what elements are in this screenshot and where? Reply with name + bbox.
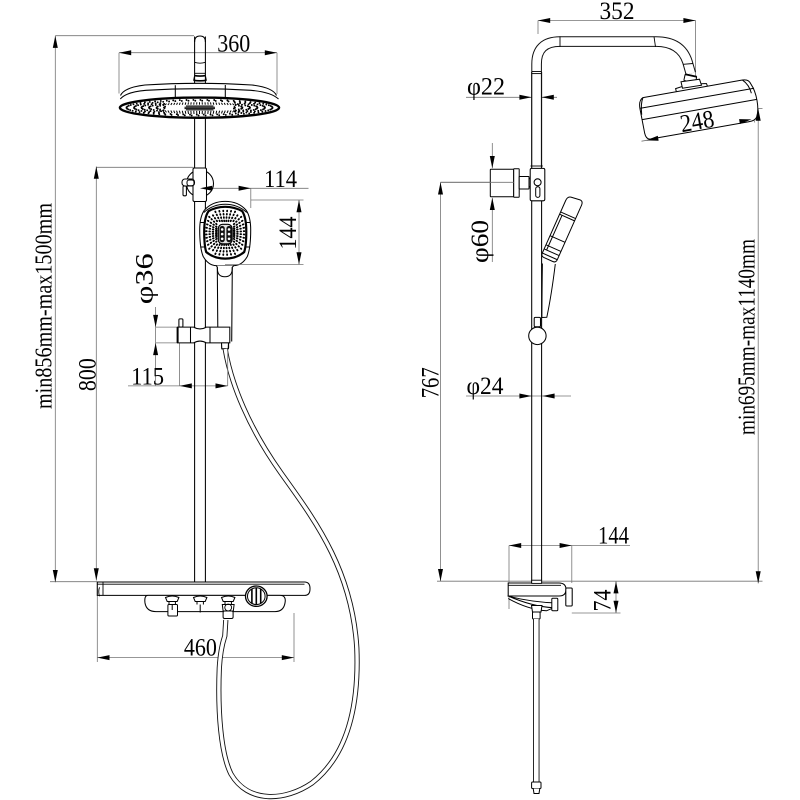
svg-text:min856mm-max1500mm: min856mm-max1500mm xyxy=(32,203,58,409)
svg-text:144: 144 xyxy=(275,216,302,249)
svg-text:352: 352 xyxy=(600,0,635,25)
svg-text:φ36: φ36 xyxy=(132,253,159,304)
svg-text:114: 114 xyxy=(264,166,297,193)
svg-text:min695mm-max1140mm: min695mm-max1140mm xyxy=(735,239,761,435)
svg-text:460: 460 xyxy=(184,635,217,662)
svg-text:φ22: φ22 xyxy=(467,74,505,101)
svg-text:φ60: φ60 xyxy=(467,220,494,263)
svg-text:360: 360 xyxy=(217,31,250,58)
svg-text:115: 115 xyxy=(131,364,164,391)
svg-text:φ24: φ24 xyxy=(467,373,504,400)
svg-text:74: 74 xyxy=(590,589,617,611)
svg-text:800: 800 xyxy=(75,358,102,391)
svg-text:767: 767 xyxy=(417,367,444,398)
svg-text:144: 144 xyxy=(598,523,629,550)
